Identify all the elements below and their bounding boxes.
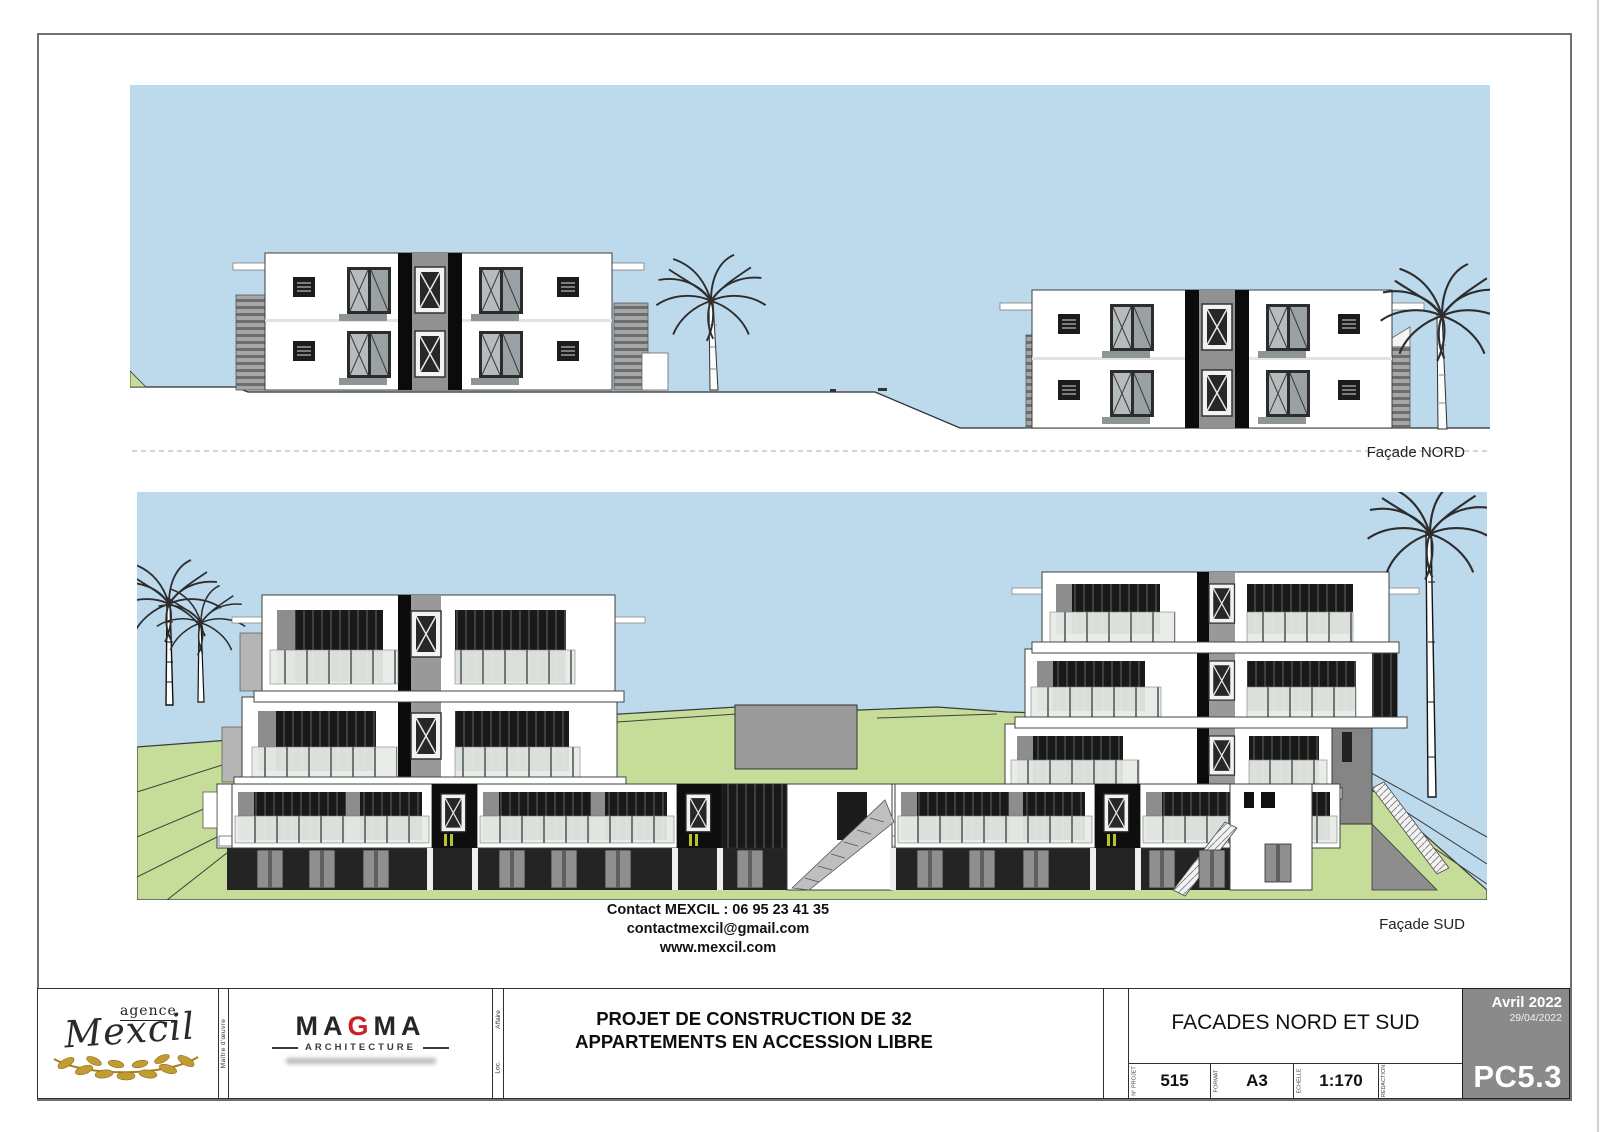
maitre-oeuvre-label: Maître d'œuvre [220, 1019, 227, 1068]
echelle-label: ECHELLE [1297, 1068, 1303, 1093]
magma-part1: MA [295, 1011, 347, 1041]
empty-strip-cell [1103, 988, 1129, 1099]
numero-projet-value: 515 [1139, 1064, 1210, 1098]
loc-label: Loc. [495, 1062, 502, 1074]
magma-part3: MA [374, 1011, 426, 1041]
echelle-value: 1:170 [1304, 1064, 1378, 1098]
south-elevation-drawing [137, 492, 1487, 900]
format-label: FORMAT [1214, 1070, 1220, 1093]
stamp-date: 29/04/2022 [1509, 1012, 1562, 1024]
project-title-cell: PROJET DE CONSTRUCTION DE 32 APPARTEMENT… [503, 988, 1104, 1099]
format-value: A3 [1221, 1064, 1293, 1098]
contact-website: www.mexcil.com [518, 939, 918, 958]
south-ground-row [203, 784, 1340, 896]
dash-right [423, 1047, 449, 1049]
project-title-line2: APPARTEMENTS EN ACCESSION LIBRE [504, 1030, 1004, 1053]
north-building-left [233, 253, 668, 390]
facade-nord-label: Façade NORD [1165, 444, 1465, 461]
field-numero-projet: N° PROJET 515 [1128, 1063, 1211, 1099]
architect-logo-cell: MAGMA ARCHITECTURE [228, 988, 493, 1099]
project-title: PROJET DE CONSTRUCTION DE 32 APPARTEMENT… [504, 1007, 1004, 1053]
dash-left [272, 1047, 298, 1049]
mexcil-word: Mexcil [63, 1004, 197, 1056]
redaction-label: REDACTION [1382, 1065, 1388, 1097]
magma-logo: MAGMA ARCHITECTURE [229, 989, 492, 1098]
south-building-left [222, 595, 645, 788]
affaire-label: Affaire [495, 1010, 502, 1029]
contact-email: contactmexcil@gmail.com [518, 920, 918, 939]
laurel-branch-icon [46, 1051, 206, 1091]
sheet-title: FACADES NORD ET SUD [1129, 1011, 1462, 1035]
south-elevation-panel [137, 492, 1487, 900]
agence-mexcil-logo: agence Mexcil [38, 989, 218, 1098]
redaction-value [1389, 1064, 1462, 1098]
sheet-code: PC5.3 [1473, 1059, 1562, 1095]
north-elevation-panel [130, 85, 1490, 455]
drawing-sheet: Façade NORD [0, 0, 1600, 1132]
field-format: FORMAT A3 [1210, 1063, 1294, 1099]
contact-phone: Contact MEXCIL : 06 95 23 41 35 [518, 901, 918, 920]
numero-projet-label: N° PROJET [1132, 1066, 1138, 1095]
facade-sud-label: Façade SUD [1165, 916, 1465, 933]
north-elevation-drawing [130, 85, 1490, 455]
sheet-title-cell: FACADES NORD ET SUD [1128, 988, 1463, 1064]
page-edge [1597, 0, 1599, 1132]
magma-part2: G [347, 1011, 373, 1041]
stamp-cell: Avril 2022 29/04/2022 PC5.3 [1462, 988, 1570, 1099]
north-building-right [1000, 290, 1424, 428]
concrete-box [735, 705, 857, 769]
field-echelle: ECHELLE 1:170 [1293, 1063, 1379, 1099]
stamp-month: Avril 2022 [1492, 994, 1562, 1011]
project-title-line1: PROJET DE CONSTRUCTION DE 32 [504, 1007, 1004, 1030]
contact-block: Contact MEXCIL : 06 95 23 41 35 contactm… [518, 901, 918, 958]
field-redaction: REDACTION [1378, 1063, 1463, 1099]
magma-subtitle: ARCHITECTURE [305, 1042, 416, 1053]
magma-fineprint-blur [286, 1058, 436, 1064]
agency-logo-cell: agence Mexcil [37, 988, 219, 1099]
